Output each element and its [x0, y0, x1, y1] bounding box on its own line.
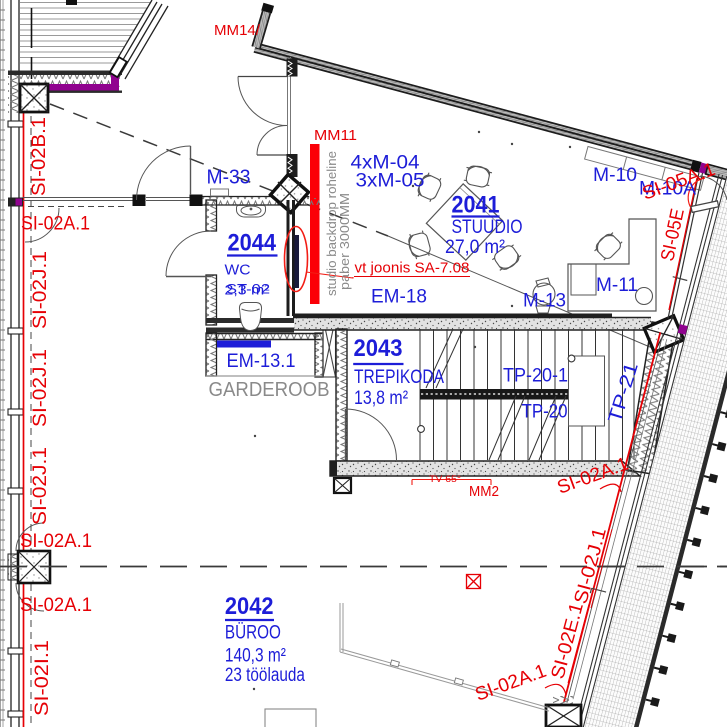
svg-text:ST-02: ST-02 [226, 280, 270, 296]
svg-text:STUUDIO: STUUDIO [452, 217, 523, 238]
svg-text:2044: 2044 [228, 229, 277, 256]
svg-text:140,3 m²: 140,3 m² [225, 646, 286, 667]
svg-text:27,0 m²: 27,0 m² [445, 237, 505, 258]
svg-text:GARDEROOB: GARDEROOB [209, 378, 330, 401]
svg-text:SI-02A.1: SI-02A.1 [21, 214, 90, 235]
svg-text:TP-20-1: TP-20-1 [503, 366, 568, 387]
svg-text:SI-02B.1: SI-02B.1 [29, 117, 50, 196]
svg-text:SI-02J.1: SI-02J.1 [30, 447, 51, 525]
svg-text:SI-02J.1: SI-02J.1 [30, 349, 51, 427]
svg-text:paber 3000MM: paber 3000MM [338, 193, 352, 290]
svg-text:M-13: M-13 [523, 291, 566, 312]
svg-text:SI-02J.1: SI-02J.1 [30, 251, 51, 329]
svg-text:BÜROO: BÜROO [225, 623, 281, 644]
svg-text:2043: 2043 [354, 335, 403, 362]
svg-text:13,8 m²: 13,8 m² [354, 388, 408, 409]
svg-text:23 töölauda: 23 töölauda [225, 665, 305, 686]
svg-text:WC: WC [225, 262, 251, 279]
svg-text:MM2: MM2 [469, 484, 499, 500]
svg-text:M-33: M-33 [207, 167, 251, 189]
svg-text:SI-02I.1: SI-02I.1 [32, 640, 53, 716]
svg-text:SI-02A.1: SI-02A.1 [20, 595, 92, 616]
svg-text:TP-20: TP-20 [522, 402, 568, 423]
svg-text:studio backdrop roheline: studio backdrop roheline [325, 151, 339, 296]
svg-text:vt joonis SA-7.08: vt joonis SA-7.08 [355, 260, 470, 277]
svg-text:2042: 2042 [225, 593, 274, 620]
svg-text:TREPIKODA: TREPIKODA [354, 367, 444, 388]
svg-text:M-11: M-11 [596, 275, 638, 296]
svg-text:TV 65°: TV 65° [429, 474, 461, 484]
svg-text:SI-02A.1: SI-02A.1 [20, 531, 92, 552]
svg-text:MM14/: MM14/ [214, 23, 261, 39]
svg-text:M-10: M-10 [593, 165, 637, 186]
svg-text:2041: 2041 [452, 192, 500, 219]
svg-text:MM11: MM11 [314, 128, 357, 144]
svg-text:3xM-05: 3xM-05 [356, 171, 425, 192]
svg-text:EM-18: EM-18 [371, 287, 427, 308]
svg-text:EM-13.1: EM-13.1 [227, 351, 296, 372]
